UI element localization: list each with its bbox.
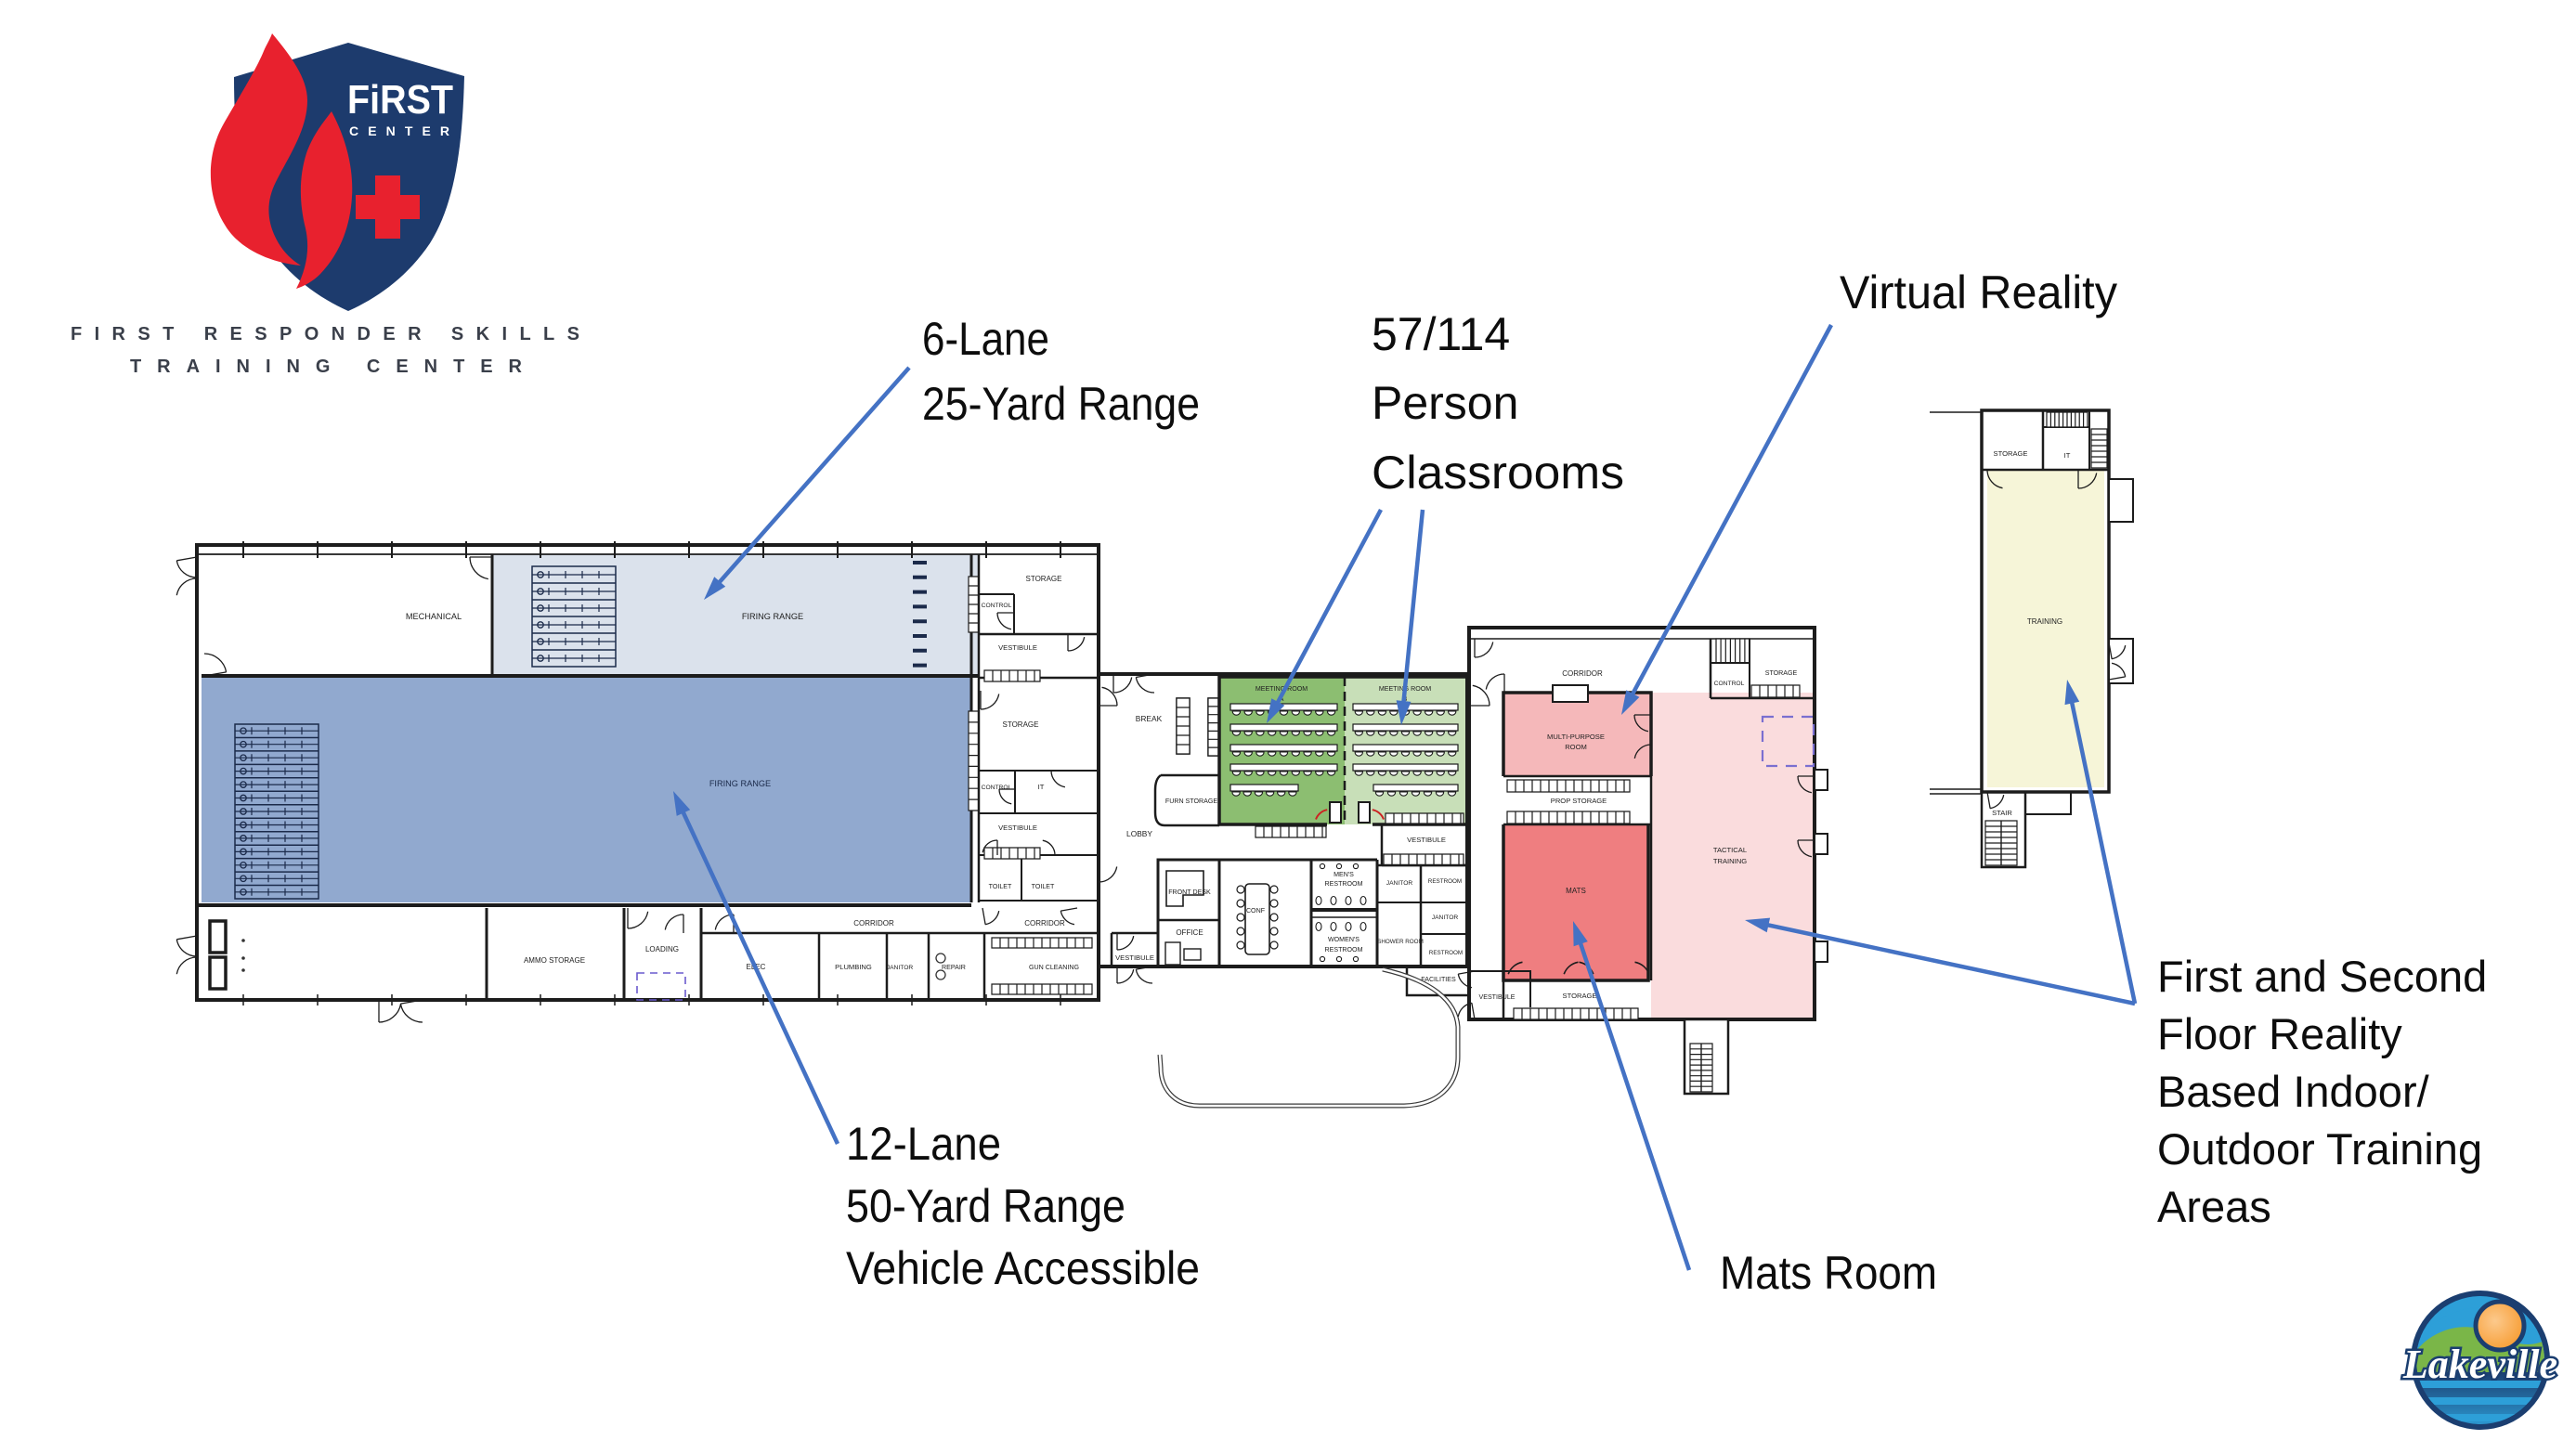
- svg-text:FACILITIES: FACILITIES: [1421, 976, 1456, 983]
- svg-text:LOADING: LOADING: [645, 945, 679, 954]
- svg-text:FURN STORAGE: FURN STORAGE: [1165, 798, 1217, 805]
- svg-text:Virtual Reality: Virtual Reality: [1840, 266, 2117, 318]
- svg-text:CONF: CONF: [1246, 907, 1266, 915]
- svg-text:First and Second: First and Second: [2157, 952, 2487, 1001]
- svg-text:STORAGE: STORAGE: [1765, 669, 1798, 677]
- svg-text:Based Indoor/: Based Indoor/: [2157, 1067, 2430, 1116]
- svg-text:CORRIDOR: CORRIDOR: [1024, 919, 1065, 928]
- svg-text:FIRING RANGE: FIRING RANGE: [709, 779, 771, 788]
- svg-text:VESTIBULE: VESTIBULE: [1478, 993, 1515, 1001]
- svg-text:25-Yard Range: 25-Yard Range: [922, 378, 1200, 430]
- svg-text:Outdoor Training: Outdoor Training: [2157, 1124, 2482, 1174]
- svg-text:JANITOR: JANITOR: [1386, 880, 1413, 887]
- svg-text:FRONT DESK: FRONT DESK: [1168, 889, 1211, 896]
- svg-text:Classrooms: Classrooms: [1372, 447, 1624, 499]
- svg-text:STORAGE: STORAGE: [1994, 449, 2028, 458]
- svg-text:VESTIBULE: VESTIBULE: [1407, 836, 1446, 844]
- svg-text:MATS: MATS: [1566, 887, 1586, 895]
- svg-text:CORRIDOR: CORRIDOR: [853, 919, 894, 928]
- svg-text:RESTROOM: RESTROOM: [1325, 880, 1363, 888]
- svg-text:TRAINING: TRAINING: [2027, 617, 2062, 626]
- svg-text:PROP STORAGE: PROP STORAGE: [1551, 797, 1607, 805]
- svg-text:STAIR: STAIR: [1992, 809, 2012, 817]
- svg-text:Lakeville: Lakeville: [2402, 1342, 2557, 1387]
- svg-text:TRAINING: TRAINING: [1713, 857, 1747, 865]
- svg-text:Person: Person: [1372, 377, 1518, 429]
- svg-text:BREAK: BREAK: [1136, 714, 1163, 723]
- svg-text:Areas: Areas: [2157, 1182, 2271, 1231]
- svg-text:VESTIBULE: VESTIBULE: [998, 824, 1037, 832]
- svg-text:GUN CLEANING: GUN CLEANING: [1029, 964, 1079, 971]
- svg-text:MECHANICAL: MECHANICAL: [406, 612, 462, 621]
- svg-text:CONTROL: CONTROL: [982, 785, 1012, 791]
- svg-text:STORAGE: STORAGE: [1563, 992, 1597, 1000]
- svg-text:JANITOR: JANITOR: [887, 965, 914, 971]
- svg-text:AMMO STORAGE: AMMO STORAGE: [524, 956, 585, 965]
- svg-text:IT: IT: [2064, 451, 2071, 460]
- svg-text:Mats Room: Mats Room: [1720, 1247, 1937, 1299]
- svg-text:IT: IT: [1038, 783, 1045, 791]
- svg-text:12-Lane: 12-Lane: [846, 1118, 1001, 1170]
- svg-text:WOMEN'S: WOMEN'S: [1328, 936, 1360, 943]
- svg-text:LOBBY: LOBBY: [1126, 829, 1152, 838]
- svg-text:STORAGE: STORAGE: [1026, 575, 1062, 583]
- svg-text:TACTICAL: TACTICAL: [1713, 846, 1747, 854]
- svg-text:RESTROOM: RESTROOM: [1428, 878, 1462, 885]
- svg-text:50-Yard Range: 50-Yard Range: [846, 1180, 1125, 1232]
- svg-text:RESTROOM: RESTROOM: [1429, 950, 1463, 956]
- svg-text:Vehicle Accessible: Vehicle Accessible: [846, 1242, 1200, 1294]
- svg-text:SHOWER ROOM: SHOWER ROOM: [1377, 939, 1424, 945]
- svg-text:CORRIDOR: CORRIDOR: [1562, 669, 1603, 678]
- svg-text:FIRING RANGE: FIRING RANGE: [742, 612, 803, 621]
- svg-text:Floor Reality: Floor Reality: [2157, 1009, 2402, 1058]
- svg-text:TRAINING CENTER: TRAINING CENTER: [130, 357, 523, 377]
- svg-text:57/114: 57/114: [1372, 308, 1510, 360]
- svg-text:MEN'S: MEN'S: [1334, 871, 1354, 878]
- svg-text:FiRST: FiRST: [347, 77, 453, 123]
- svg-text:STORAGE: STORAGE: [1003, 720, 1039, 729]
- svg-text:OFFICE: OFFICE: [1176, 928, 1203, 937]
- svg-text:6-Lane: 6-Lane: [922, 313, 1049, 365]
- svg-text:VESTIBULE: VESTIBULE: [998, 643, 1037, 652]
- svg-text:ROOM: ROOM: [1565, 743, 1587, 751]
- svg-text:TOILET: TOILET: [989, 883, 1012, 890]
- svg-text:PLUMBING: PLUMBING: [835, 963, 872, 971]
- svg-text:RESTROOM: RESTROOM: [1325, 946, 1363, 954]
- svg-text:TOILET: TOILET: [1032, 883, 1055, 890]
- svg-text:MULTI-PURPOSE: MULTI-PURPOSE: [1547, 733, 1605, 741]
- svg-text:VESTIBULE: VESTIBULE: [1115, 954, 1154, 962]
- svg-text:JANITOR: JANITOR: [1432, 915, 1459, 921]
- svg-text:REPAIR: REPAIR: [942, 964, 966, 971]
- svg-text:CONTROL: CONTROL: [982, 603, 1012, 609]
- svg-text:CONTROL: CONTROL: [1714, 681, 1745, 687]
